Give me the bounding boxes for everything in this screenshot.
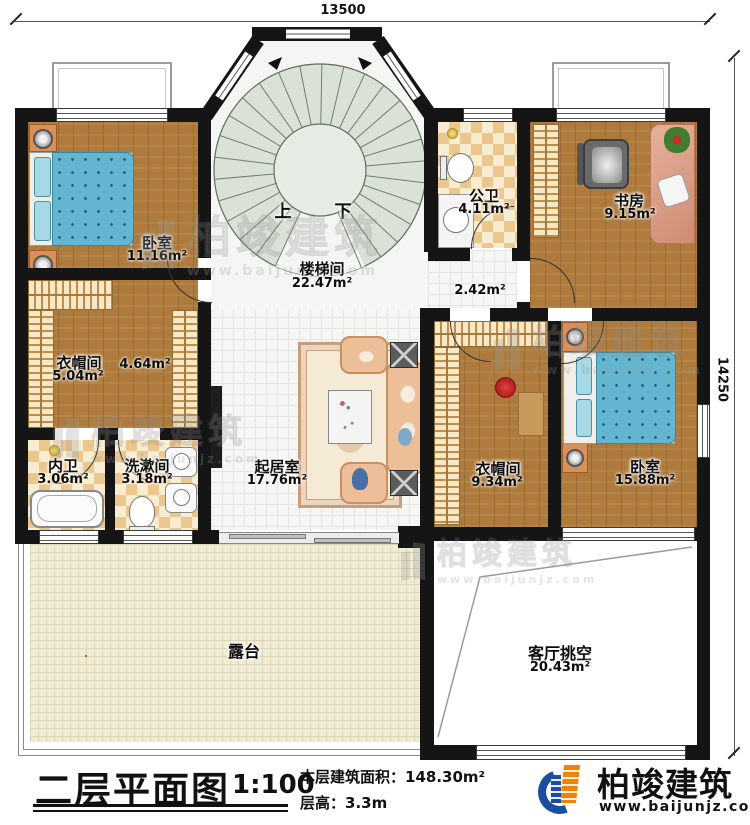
wall: [160, 428, 211, 440]
living-area: 17.76m²: [239, 473, 315, 488]
mattress: [596, 352, 676, 444]
window: [39, 530, 99, 544]
bedroom2-area: 15.88m²: [610, 473, 680, 488]
side-table: [390, 342, 418, 368]
coffee-table: [328, 390, 372, 444]
nightstand: [29, 124, 57, 152]
floor-area-row: 本层建筑面积：148.30m²: [300, 766, 485, 787]
wall: [99, 530, 123, 544]
dimension-line-top: [15, 21, 710, 22]
wall: [198, 108, 211, 258]
cloakroom1-area: 5.04m²: [45, 369, 111, 384]
title-underline: [33, 804, 288, 807]
dimension-tick: [10, 13, 23, 26]
bay-window: [552, 62, 670, 108]
wall: [193, 530, 219, 544]
toilet-tank: [440, 156, 447, 180]
toilet: [447, 153, 474, 183]
floor-height-row: 层高：3.3m: [300, 792, 387, 813]
brand-logo-building: [551, 775, 561, 803]
tv: [211, 386, 222, 468]
stairwell-area: 22.47m²: [286, 276, 358, 291]
sink-basin: [173, 489, 190, 506]
armchair: [340, 336, 388, 374]
window: [697, 404, 710, 458]
title-underline: [33, 810, 288, 812]
cloakroom2-area: 9.34m²: [464, 475, 530, 490]
wall: [548, 321, 561, 527]
floor-area-value: 148.30m²: [405, 768, 485, 786]
wall: [198, 302, 211, 544]
stair-up-label: 上: [268, 197, 298, 222]
void-area: 20.43m²: [520, 660, 600, 675]
floor-height-label: 层高：: [300, 794, 345, 812]
bedroom1-area: 11.16m²: [123, 249, 191, 264]
dimension-tick: [704, 13, 717, 26]
sliding-door-leaf: [314, 538, 391, 543]
washroom-area: 3.18m²: [113, 472, 181, 487]
wall: [15, 530, 39, 544]
sliding-door: [219, 532, 399, 544]
spacer: [85, 655, 87, 657]
ensuite-area: 3.06m²: [30, 472, 96, 487]
lamp: [33, 129, 53, 149]
dimension-right-label: 14250: [715, 350, 730, 410]
bathtub: [30, 490, 104, 528]
hall-area: 2.42m²: [448, 283, 512, 298]
pillow: [34, 157, 51, 197]
study-area: 9.15m²: [596, 207, 664, 222]
wall: [517, 108, 530, 258]
floor-area-label: 本层建筑面积：: [300, 768, 405, 786]
ceiling-lamp: [447, 128, 458, 139]
dimension-top-label: 13500: [312, 3, 374, 18]
stool: [495, 377, 516, 398]
floor-height-value: 3.3m: [345, 794, 387, 812]
pillow: [34, 201, 51, 241]
brand-logo-icon: [538, 762, 590, 818]
publicbath-area: 4.11m²: [452, 202, 516, 217]
window: [56, 108, 168, 122]
wall: [490, 308, 548, 321]
bay-window: [52, 62, 172, 108]
dimension-line-right: [734, 58, 735, 756]
wardrobe: [434, 347, 460, 525]
dresser: [518, 392, 544, 436]
wall: [428, 248, 470, 261]
bay-window-frame: [558, 68, 664, 108]
lamp: [566, 449, 584, 467]
window: [463, 108, 513, 122]
bathtub-basin: [37, 495, 97, 522]
wall: [15, 428, 55, 440]
pillow: [576, 357, 592, 395]
brand-url: www.baijunjz.com: [599, 799, 750, 815]
plant: [664, 127, 690, 153]
side-table: [390, 470, 418, 496]
person: [352, 468, 368, 490]
sliding-door-leaf: [229, 534, 306, 539]
nightstand: [562, 443, 588, 473]
stair-down-label: 下: [328, 197, 358, 222]
wall: [15, 108, 28, 544]
sink: [165, 483, 197, 513]
toilet: [129, 496, 155, 528]
bay-window-frame: [58, 68, 166, 108]
wall: [98, 428, 118, 440]
wall: [432, 527, 562, 541]
window: [562, 527, 695, 541]
window: [556, 108, 666, 122]
chair-seat: [592, 147, 622, 183]
person: [398, 428, 412, 446]
office-chair: [583, 139, 629, 189]
wall: [420, 745, 476, 760]
corridor-area: 4.64m²: [112, 357, 178, 372]
wall: [592, 308, 710, 321]
wall: [512, 248, 530, 261]
floor-plan: 13500 14250: [0, 0, 750, 825]
mattress: [52, 152, 134, 246]
wardrobe: [28, 280, 113, 310]
wardrobe: [533, 124, 559, 238]
terrace-label: 露台: [213, 638, 275, 662]
pillow: [576, 399, 592, 437]
window: [123, 530, 193, 544]
